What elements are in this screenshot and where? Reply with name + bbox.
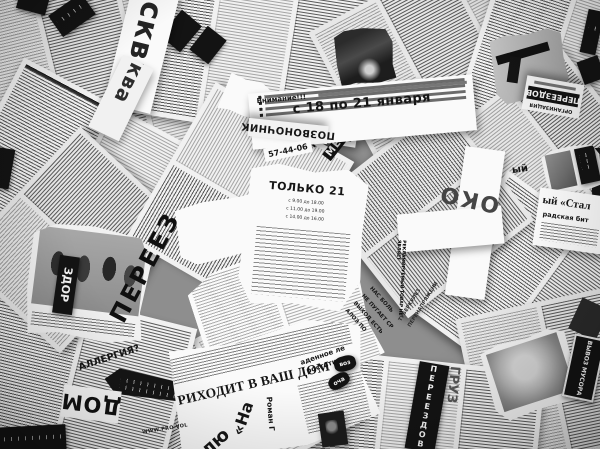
dark-photo bbox=[333, 25, 397, 87]
text-column bbox=[251, 226, 351, 302]
newspaper-collage-photo: осква ква Внимание!!! с 18 по 21 января … bbox=[0, 0, 600, 449]
tiny-text-stripe bbox=[57, 3, 86, 25]
tiny-text-stripe bbox=[582, 164, 595, 170]
small-photo-chip bbox=[318, 410, 348, 447]
pistol-barrel bbox=[496, 42, 550, 66]
wheel-label-1: воз bbox=[339, 359, 352, 369]
prihodit-quote: «На bbox=[228, 399, 257, 438]
tiny-text-stripe bbox=[589, 25, 598, 31]
small-photo bbox=[545, 150, 578, 191]
pistol-grip bbox=[507, 56, 522, 83]
photo-highlight bbox=[325, 419, 339, 438]
prihodit-byline: Роман Г bbox=[265, 396, 278, 445]
dom-headline: ДОМ bbox=[60, 385, 121, 424]
wheel-label-2: оча bbox=[332, 375, 346, 387]
stalingrad-scrap: ый «Стал радская бит bbox=[532, 187, 600, 254]
headline-fragment-block bbox=[0, 424, 67, 449]
stalingrad-line1: ый «Стал bbox=[542, 194, 591, 213]
caption-block bbox=[574, 145, 600, 184]
dom-headline-strip: ДОМ bbox=[60, 385, 121, 424]
only21-leaflet: ТОЛЬКО 21 с 9.00 до 18.00 с 11.00 до 19.… bbox=[236, 161, 370, 313]
stalingrad-fragment: ый bbox=[511, 163, 528, 176]
text-lines bbox=[539, 222, 599, 248]
tiny-text-stripe bbox=[0, 434, 62, 441]
